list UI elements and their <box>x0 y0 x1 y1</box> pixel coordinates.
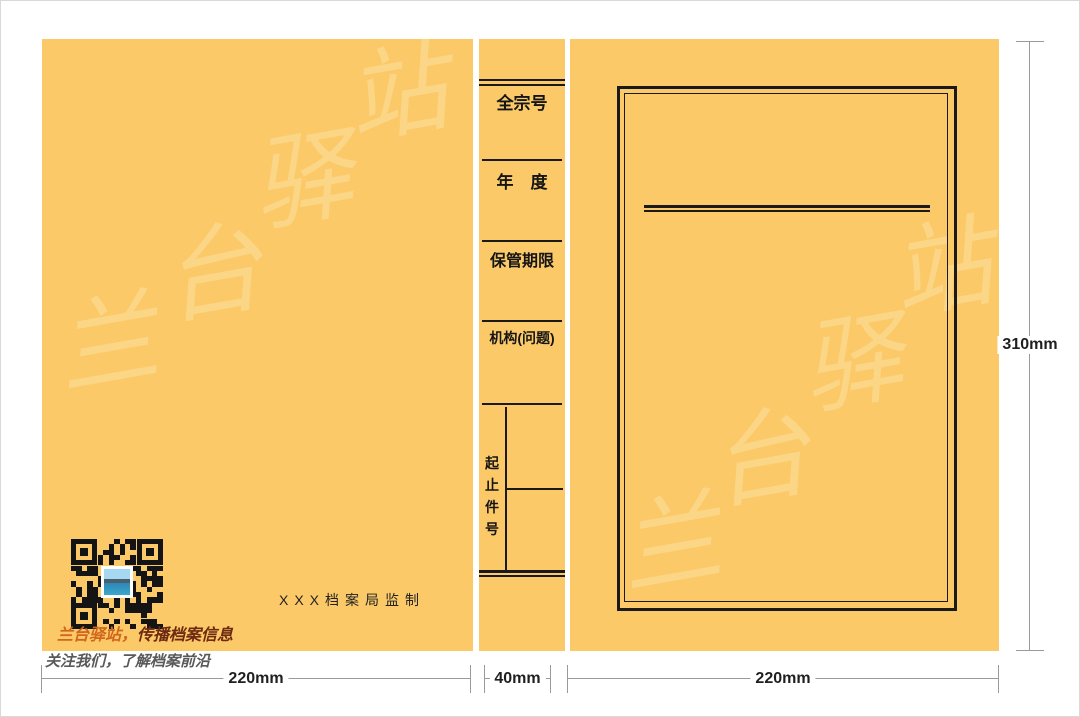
spine-field-organization-issue: 机构(问题) <box>479 328 565 348</box>
spine-rule <box>482 240 562 242</box>
dimension-label: 220mm <box>223 670 288 688</box>
dimension-tick <box>1016 650 1044 651</box>
dimension-height: 310mm <box>1016 41 1044 651</box>
watermark-char: 兰 <box>49 286 165 402</box>
back-cover-panel: 兰 台 驿 站 XXX档案局监制 <box>42 39 473 651</box>
slogan-brand: 兰台驿站， <box>57 627 137 644</box>
qr-finder-icon <box>137 539 163 565</box>
spine-field-item-number-range: 起止件号 <box>480 452 504 540</box>
dimension-spine-width: 40mm <box>484 665 551 693</box>
spine-rule <box>482 159 562 161</box>
slogan-tagline: 传播档案信息 <box>137 627 233 644</box>
slogan-line-2: 关注我们，了解档案前沿 <box>45 650 210 671</box>
spine-rule <box>482 320 562 322</box>
dimension-tick <box>470 665 471 693</box>
spine-field-year: 年 度 <box>479 168 565 193</box>
dimension-label: 310mm <box>997 336 1062 354</box>
spine-field-fond-number: 全宗号 <box>479 89 565 114</box>
spine-bottom-rule <box>479 570 565 577</box>
slogan-line-1: 兰台驿站，传播档案信息 <box>57 621 233 645</box>
front-cover-panel: 兰 台 驿 站 <box>570 39 999 651</box>
qr-finder-icon <box>71 539 97 565</box>
item-number-cell-rule <box>507 488 563 490</box>
dimension-tick <box>484 665 485 693</box>
dimension-tick <box>1016 41 1044 42</box>
archive-box-cover-spec: 兰 台 驿 站 XXX档案局监制 全宗号 年 度 保管期限 机构(问题) 起止件… <box>0 0 1080 717</box>
publisher-label: XXX档案局监制 <box>202 590 473 610</box>
watermark-char: 站 <box>339 39 455 152</box>
dimension-tick <box>550 665 551 693</box>
dimension-tick <box>567 665 568 693</box>
spine-top-rule <box>479 79 565 86</box>
dimension-tick <box>998 665 999 693</box>
watermark-char: 台 <box>154 216 270 332</box>
cover-title-rule <box>644 205 930 212</box>
watermark-char: 驿 <box>244 123 360 239</box>
qr-center-photo <box>101 566 133 598</box>
dimension-label: 220mm <box>750 670 815 688</box>
spine-rule <box>482 403 562 405</box>
dimension-front-width: 220mm <box>567 665 999 693</box>
dimension-tick <box>41 665 42 693</box>
spine-field-retention-period: 保管期限 <box>479 247 565 271</box>
dimension-label: 40mm <box>489 670 545 688</box>
cover-inner-frame <box>624 93 948 602</box>
spine-panel: 全宗号 年 度 保管期限 机构(问题) 起止件号 <box>479 39 565 651</box>
qr-code <box>71 539 163 629</box>
